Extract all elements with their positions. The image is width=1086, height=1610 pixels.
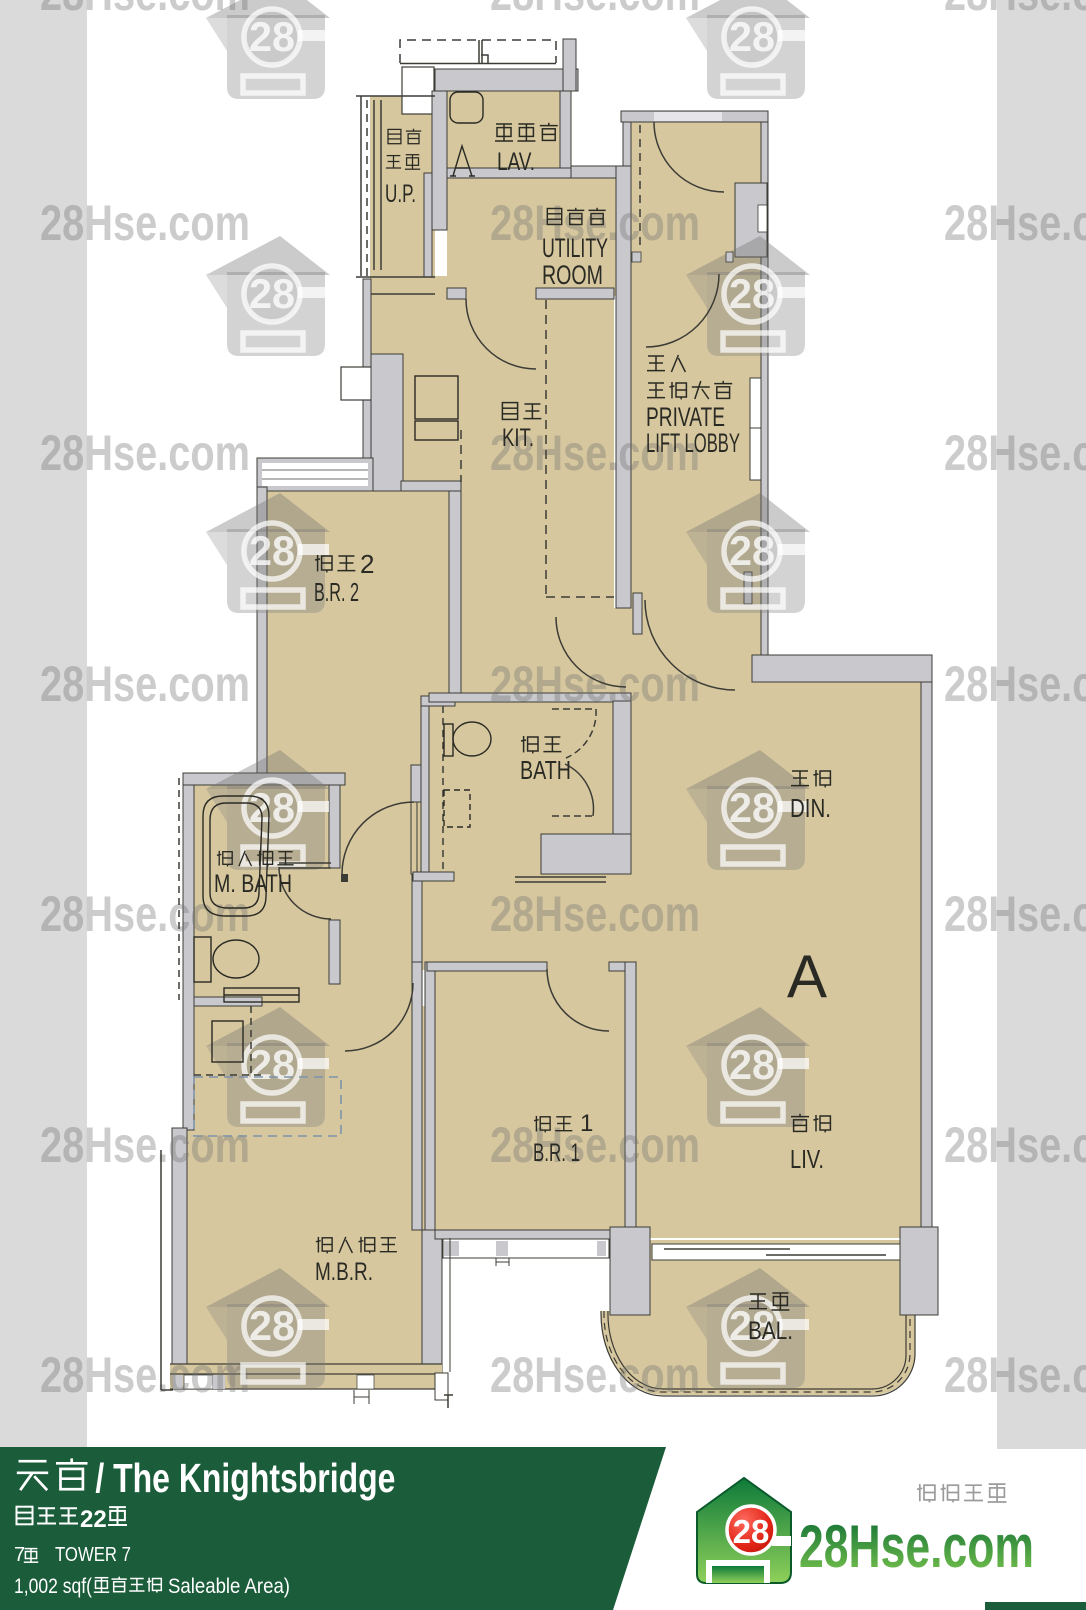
svg-text:/ The Knightsbridge: / The Knightsbridge — [95, 1455, 395, 1501]
svg-text:28Hse.com: 28Hse.com — [490, 886, 700, 942]
svg-text:LIV.: LIV. — [790, 1144, 824, 1174]
svg-text:A: A — [787, 943, 827, 1010]
svg-text:28Hse.com: 28Hse.com — [944, 1347, 1086, 1403]
svg-text:28Hse.com: 28Hse.com — [944, 1117, 1086, 1173]
svg-text:TOWER 7: TOWER 7 — [55, 1544, 131, 1566]
svg-text:1: 1 — [580, 1110, 593, 1137]
svg-text:1,002 sqf(: 1,002 sqf( — [14, 1575, 92, 1598]
svg-text:LIFT LOBBY: LIFT LOBBY — [646, 428, 740, 458]
svg-text:UTILITY: UTILITY — [542, 233, 608, 263]
svg-text:B.R. 2: B.R. 2 — [314, 577, 359, 607]
svg-text:22: 22 — [80, 1506, 107, 1533]
svg-text:M.B.R.: M.B.R. — [315, 1258, 373, 1286]
svg-text:DIN.: DIN. — [790, 793, 831, 823]
svg-text:28Hse.com: 28Hse.com — [944, 195, 1086, 251]
svg-text:28Hse.com: 28Hse.com — [799, 1513, 1034, 1580]
svg-text:28Hse.com: 28Hse.com — [944, 0, 1086, 21]
svg-text:28Hse.com: 28Hse.com — [490, 1117, 700, 1173]
svg-text:U.P.: U.P. — [385, 180, 416, 208]
svg-text:28Hse.com: 28Hse.com — [944, 425, 1086, 481]
svg-text:28Hse.com: 28Hse.com — [40, 195, 250, 251]
svg-text:28Hse.com: 28Hse.com — [40, 656, 250, 712]
svg-text:BATH: BATH — [520, 755, 571, 785]
svg-text:Saleable Area): Saleable Area) — [168, 1575, 290, 1598]
svg-text:KIT.: KIT. — [502, 424, 534, 452]
svg-text:B.R. 1: B.R. 1 — [533, 1139, 580, 1167]
svg-text:28Hse.com: 28Hse.com — [490, 0, 700, 21]
svg-text:28Hse.com: 28Hse.com — [944, 886, 1086, 942]
svg-text:ROOM: ROOM — [542, 260, 603, 290]
svg-text:28Hse.com: 28Hse.com — [40, 1347, 250, 1403]
svg-text:2: 2 — [360, 549, 374, 579]
svg-text:28: 28 — [733, 1513, 770, 1550]
svg-text:LAV.: LAV. — [497, 148, 535, 176]
svg-text:28Hse.com: 28Hse.com — [40, 425, 250, 481]
svg-text:M. BATH: M. BATH — [214, 870, 292, 898]
svg-text:7: 7 — [14, 1544, 25, 1566]
svg-text:28Hse.com: 28Hse.com — [490, 656, 700, 712]
svg-text:28Hse.com: 28Hse.com — [490, 1347, 700, 1403]
svg-text:28Hse.com: 28Hse.com — [40, 1117, 250, 1173]
svg-text:28Hse.com: 28Hse.com — [944, 656, 1086, 712]
svg-text:BAL.: BAL. — [748, 1317, 793, 1345]
